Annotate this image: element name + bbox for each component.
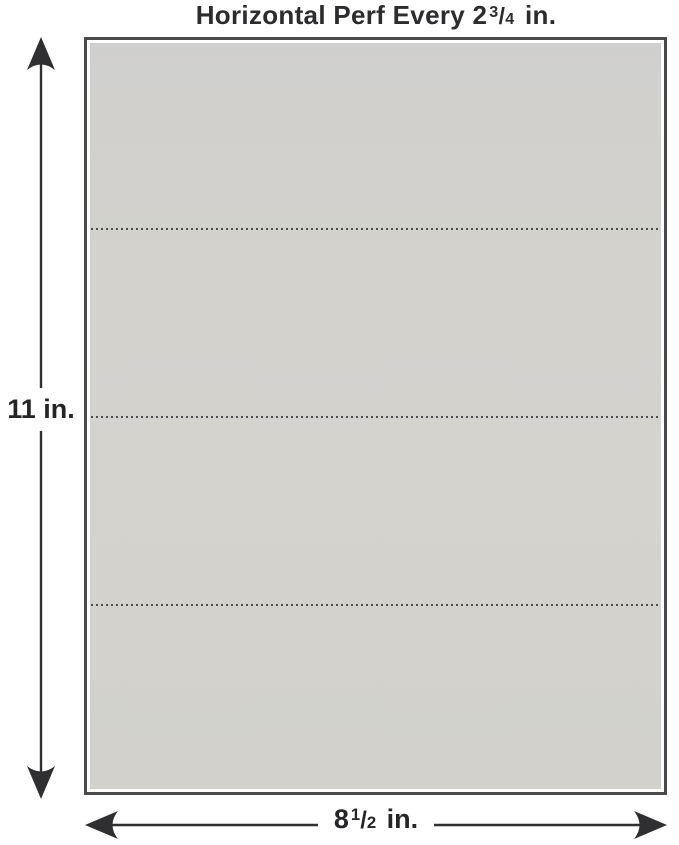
height-dimension-label: 11 in. bbox=[0, 388, 82, 431]
diagram-title: Horizontal Perf Every 23/4 in. bbox=[84, 0, 668, 31]
width-unit: in. bbox=[387, 804, 419, 834]
title-fraction-numerator: 3 bbox=[489, 3, 498, 21]
width-dimension-label-wrap: 81/2 in. bbox=[84, 804, 668, 835]
title-text: Horizontal Perf Every 2 bbox=[196, 0, 488, 30]
width-fraction-separator: / bbox=[360, 807, 367, 834]
diagram-canvas: Horizontal Perf Every 23/4 in. 11 in. 81… bbox=[0, 0, 679, 845]
title-unit: in. bbox=[525, 0, 556, 30]
width-dimension-label: 81/2 in. bbox=[318, 804, 434, 835]
title-fraction-denominator: 4 bbox=[505, 10, 514, 28]
width-fraction-numerator: 1 bbox=[351, 805, 360, 824]
sheet bbox=[84, 37, 667, 795]
width-fraction-denominator: 2 bbox=[367, 813, 376, 832]
width-value: 8 bbox=[334, 804, 349, 834]
perforation-line bbox=[91, 604, 660, 606]
perforation-line bbox=[91, 416, 660, 418]
perforation-line bbox=[91, 228, 660, 230]
